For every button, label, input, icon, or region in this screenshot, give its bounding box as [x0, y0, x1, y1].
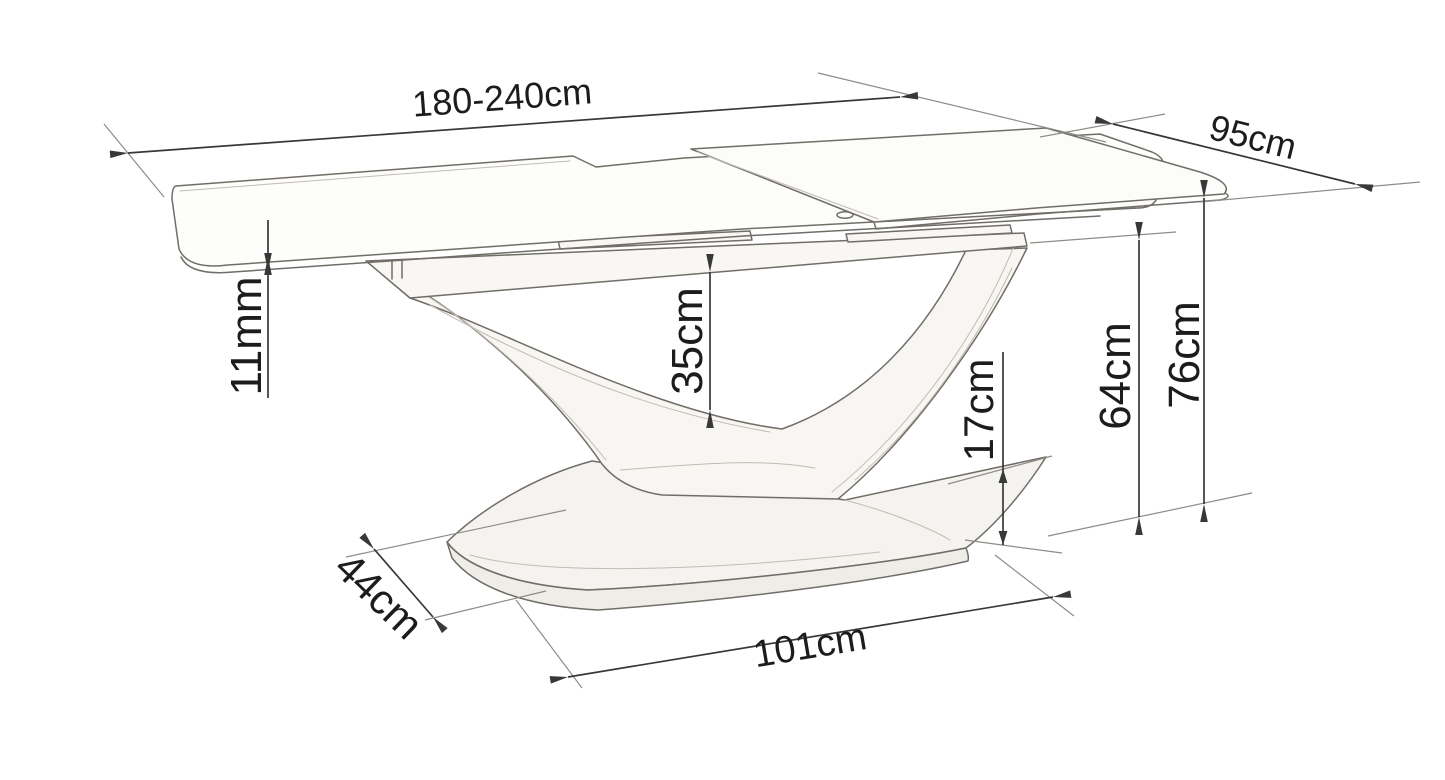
- dim-label-top-thickness: 11mm: [222, 277, 271, 396]
- ext-frame-height-top: [1030, 232, 1176, 243]
- dimension-base-depth: 44cm: [326, 543, 433, 648]
- ext-depth-left: [1040, 114, 1165, 137]
- ext-length-right: [818, 73, 1106, 142]
- table-dimension-diagram: 180-240cm 95cm 11mm 35cm 17cm 64cm 76cm …: [0, 0, 1445, 780]
- dimension-length: 180-240cm: [128, 70, 900, 153]
- dimension-base-length: 101cm: [568, 597, 1053, 677]
- ext-base-height-bottom: [965, 540, 1062, 553]
- dimension-under-clearance: 35cm: [663, 272, 712, 410]
- ext-length-left: [104, 124, 164, 197]
- diagram-svg: 180-240cm 95cm 11mm 35cm 17cm 64cm 76cm …: [0, 0, 1445, 780]
- dimension-frame-height: 64cm: [1091, 240, 1140, 517]
- ext-depth-right: [1200, 182, 1420, 202]
- dim-label-frame-height: 64cm: [1091, 322, 1140, 430]
- dim-label-base-height: 17cm: [955, 359, 1002, 462]
- dimension-total-height: 76cm: [1160, 198, 1209, 504]
- dim-label-base-depth: 44cm: [326, 543, 433, 648]
- dim-label-length: 180-240cm: [411, 70, 594, 124]
- ext-base-length-right: [995, 555, 1074, 616]
- dim-label-total-height: 76cm: [1160, 301, 1209, 409]
- dim-label-under-clearance: 35cm: [663, 287, 712, 395]
- floor-line: [1048, 493, 1252, 536]
- ext-base-length-left: [516, 600, 582, 688]
- dim-label-base-length: 101cm: [750, 616, 869, 676]
